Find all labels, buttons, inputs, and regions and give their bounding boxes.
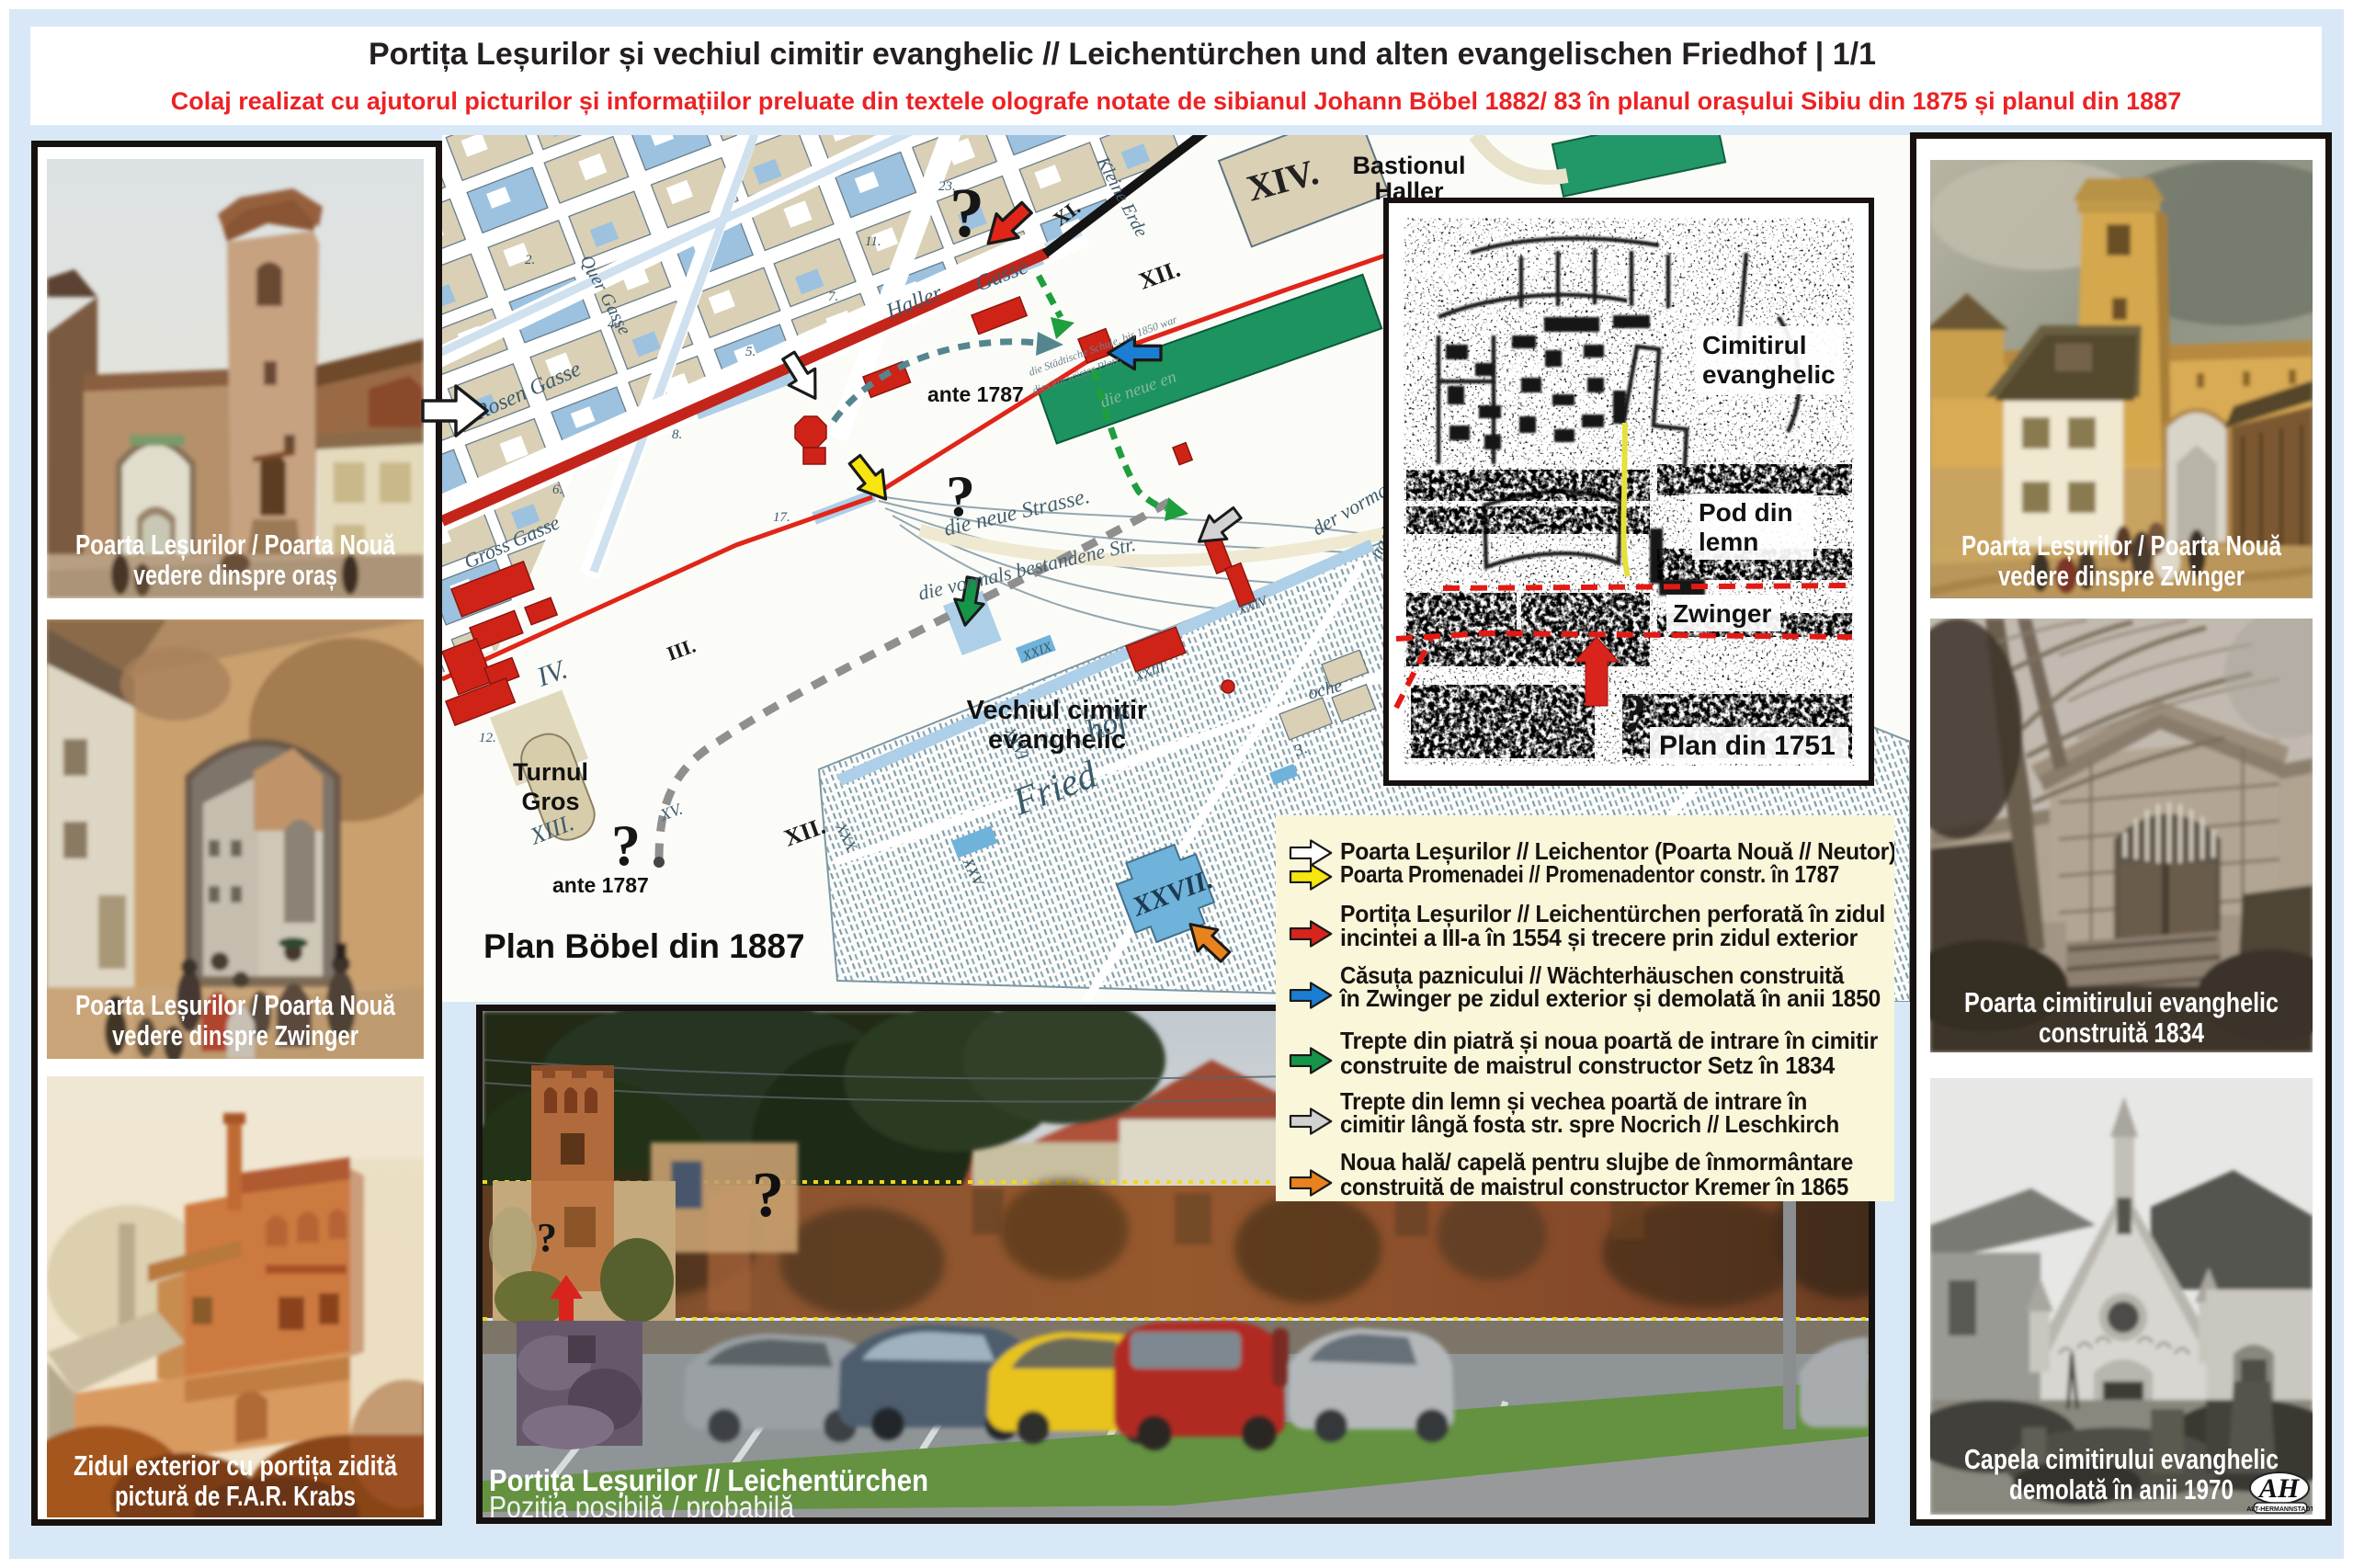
svg-text:Poarta Leșurilor / Poarta Nouă: Poarta Leșurilor / Poarta Nouă bbox=[75, 528, 396, 561]
svg-text:?: ? bbox=[611, 812, 641, 878]
svg-text:Poarta cimitirului evanghelic: Poarta cimitirului evanghelic bbox=[1964, 986, 2279, 1018]
svg-text:Noua hală/ capelă pentru slujb: Noua hală/ capelă pentru slujbe de înmor… bbox=[1340, 1148, 1853, 1176]
svg-text:Zwinger: Zwinger bbox=[1673, 599, 1771, 628]
svg-text:în Zwinger pe zidul exterior ș: în Zwinger pe zidul exterior și demolată… bbox=[1338, 984, 1881, 1012]
svg-text:23.: 23. bbox=[938, 179, 956, 194]
svg-text:4.: 4. bbox=[608, 317, 618, 332]
svg-text:8.: 8. bbox=[672, 427, 682, 442]
svg-text:Pod din: Pod din bbox=[1699, 498, 1793, 527]
svg-text:11.: 11. bbox=[865, 234, 881, 249]
svg-text:Poarta Leșurilor / Poarta Nouă: Poarta Leșurilor / Poarta Nouă bbox=[1961, 529, 2282, 562]
svg-text:Gros: Gros bbox=[521, 788, 579, 815]
svg-text:Poarta Promenadei // Promenade: Poarta Promenadei // Promenadentor const… bbox=[1340, 860, 1839, 888]
svg-text:Bastionul: Bastionul bbox=[1352, 152, 1465, 179]
svg-text:A: A bbox=[2257, 1473, 2278, 1504]
svg-text:7.: 7. bbox=[828, 290, 838, 304]
svg-text:ALT-HERMANNSTADT: ALT-HERMANNSTADT bbox=[2246, 1506, 2313, 1513]
svg-text:5.: 5. bbox=[745, 345, 756, 359]
svg-text:6.: 6. bbox=[552, 483, 563, 497]
svg-text:Trepte din piatră și noua poar: Trepte din piatră și noua poartă de intr… bbox=[1340, 1027, 1878, 1054]
svg-text:ante 1787: ante 1787 bbox=[927, 382, 1024, 406]
svg-text:?: ? bbox=[1620, 683, 1647, 743]
svg-text:cimitir lângă fosta str. spre: cimitir lângă fosta str. spre Nocrich //… bbox=[1340, 1110, 1839, 1138]
svg-text:incintei a III-a în 1554 și tr: incintei a III-a în 1554 și trecere prin… bbox=[1340, 924, 1858, 951]
svg-text:demolată în anii 1970: demolată în anii 1970 bbox=[2009, 1473, 2234, 1506]
svg-text:Plan din 1751: Plan din 1751 bbox=[1659, 731, 1836, 761]
svg-text:vedere dinspre Zwinger: vedere dinspre Zwinger bbox=[112, 1019, 358, 1051]
svg-text:construită de maistrul constru: construită de maistrul constructor Kreme… bbox=[1340, 1173, 1848, 1200]
svg-text:17.: 17. bbox=[773, 510, 790, 525]
svg-text:Cimitirul: Cimitirul bbox=[1702, 331, 1807, 359]
svg-text:Plan Böbel din 1887: Plan Böbel din 1887 bbox=[483, 927, 805, 965]
svg-text:construită 1834: construită 1834 bbox=[2039, 1017, 2205, 1049]
svg-text:vedere dinspre Zwinger: vedere dinspre Zwinger bbox=[1998, 560, 2245, 592]
svg-text:Zidul exterior cu portița zidi: Zidul exterior cu portița zidită bbox=[74, 1449, 398, 1482]
svg-text:evanghelic: evanghelic bbox=[1702, 360, 1836, 389]
svg-text:12.: 12. bbox=[479, 731, 496, 745]
svg-text:vedere dinspre oraș: vedere dinspre oraș bbox=[133, 559, 337, 591]
svg-text:pictură de F.A.R. Krabs: pictură de F.A.R. Krabs bbox=[115, 1480, 356, 1512]
svg-text:?: ? bbox=[537, 1215, 557, 1260]
svg-text:Poarta Leșurilor / Poarta Nouă: Poarta Leșurilor / Poarta Nouă bbox=[75, 989, 396, 1021]
svg-text:H: H bbox=[2277, 1473, 2301, 1504]
svg-text:?: ? bbox=[752, 1160, 784, 1231]
svg-text:2.: 2. bbox=[525, 253, 535, 267]
svg-text:Turnul: Turnul bbox=[513, 758, 588, 786]
svg-text:Capela cimitirului evanghelic: Capela cimitirului evanghelic bbox=[1964, 1443, 2279, 1475]
svg-text:lemn: lemn bbox=[1699, 528, 1758, 556]
svg-text:construite de maistrul constru: construite de maistrul constructor Setz … bbox=[1340, 1051, 1836, 1079]
